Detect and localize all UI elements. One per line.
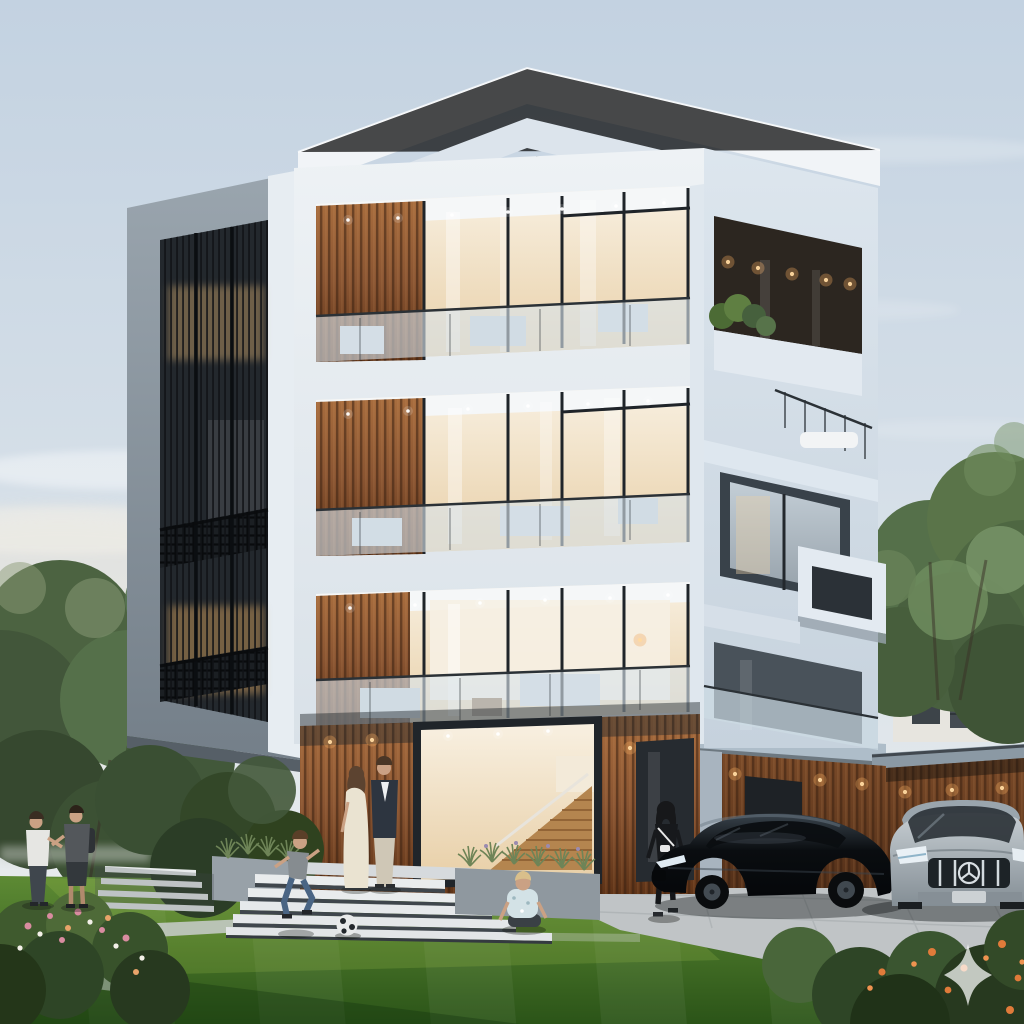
steps-left-run [95, 866, 214, 912]
left-louver-facade [127, 170, 300, 772]
terrace-lounge [800, 432, 858, 448]
louver-screen [160, 220, 268, 722]
right-volume [704, 148, 886, 750]
license-plate [952, 891, 986, 903]
headlight [1012, 848, 1024, 862]
front-right-fascia [690, 184, 704, 744]
scene-canvas: Modern four-storey residence at dusk — a… [0, 0, 1024, 1024]
architectural-rendering: Modern four-storey residence at dusk — a… [0, 0, 1024, 1024]
floor3-balcony [316, 386, 690, 556]
front-grille [652, 870, 666, 881]
floor4-balcony [316, 186, 690, 362]
waist-bag [660, 845, 670, 852]
stair-landing [556, 756, 594, 792]
interior-glow [736, 496, 770, 574]
